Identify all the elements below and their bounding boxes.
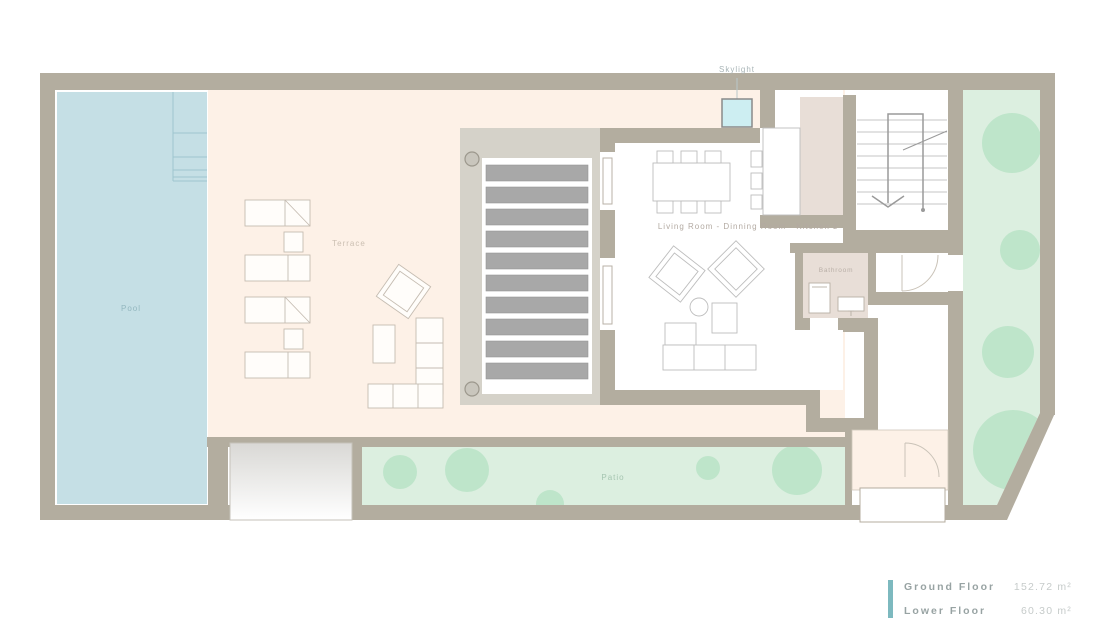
floor-plan-drawing: Skylight Terrace Pool Living Room - Dinn… [0, 0, 1110, 623]
wall-step-a [843, 318, 878, 332]
round-side-table [690, 298, 708, 316]
pergola-deck [460, 128, 605, 405]
glass-door-leaf-lower [603, 266, 612, 324]
wall-top [40, 73, 1055, 90]
wall-below-stairs [843, 230, 963, 243]
wall-right [1040, 73, 1055, 415]
outdoor-sofa-horizontal [368, 384, 443, 408]
wall-step-b [864, 332, 878, 432]
dining-chair [681, 201, 697, 213]
entry-vestibule-floor [876, 253, 948, 292]
wall-bathroom-top [790, 243, 963, 253]
wall-vestibule-bottom [868, 292, 963, 305]
bathroom-door-opening [810, 318, 838, 330]
bar-stool [751, 195, 762, 209]
patio-label: Patio [601, 473, 624, 482]
wall-skylight-side [760, 88, 775, 128]
driveway-ramp [230, 443, 352, 520]
legend-row-lower-floor: Lower Floor 60.30 m² [904, 605, 1072, 617]
side-table [284, 329, 303, 349]
legend-label: Ground Floor [904, 581, 995, 593]
wall-patio-entry-divider [845, 430, 852, 505]
dining-chair [657, 201, 673, 213]
shower [809, 283, 830, 313]
coffee-table [712, 303, 737, 333]
skylight-label: Skylight [719, 65, 755, 74]
toilet [838, 297, 864, 311]
wall-pool-ramp-divider [208, 443, 228, 520]
sun-lounger [245, 200, 310, 226]
bar-stool [751, 173, 762, 189]
entry-door-opening [948, 255, 963, 291]
pergola-column [465, 382, 479, 396]
side-table [284, 232, 303, 252]
dining-chair [681, 151, 697, 163]
wall-ramp-right [352, 443, 362, 505]
pool-area [57, 92, 207, 504]
wall-bathroom-left [795, 243, 803, 330]
terrace-label: Terrace [332, 239, 366, 248]
outdoor-coffee-table [373, 325, 395, 363]
legend-value: 152.72 m² [1014, 581, 1072, 593]
area-legend: Ground Floor 152.72 m² Lower Floor 60.30… [888, 580, 1072, 618]
bar-stool [751, 151, 762, 167]
outdoor-sofa-vertical [416, 318, 443, 394]
sofa [663, 345, 756, 370]
legend-rows: Ground Floor 152.72 m² Lower Floor 60.30… [904, 580, 1072, 618]
skylight-window [722, 99, 752, 127]
sun-lounger [245, 352, 310, 378]
pergola-column [465, 152, 479, 166]
dining-table [653, 163, 730, 201]
staircase-floor [856, 97, 948, 230]
ottoman [665, 323, 696, 345]
sun-lounger [245, 255, 310, 281]
side-court-floor [878, 305, 948, 418]
wall-living-bottom [600, 390, 820, 405]
entry-gate [860, 488, 945, 522]
legend-accent-bar [888, 580, 893, 618]
living-room-label: Living Room - Dinning Room - Kitchen z [658, 222, 838, 231]
legend-value: 60.30 m² [1021, 605, 1072, 617]
pool-label: Pool [121, 304, 141, 313]
wall-stairs-divider [843, 95, 856, 243]
floor-plan-canvas: Skylight Terrace Pool Living Room - Dinn… [0, 0, 1110, 623]
dining-chair [705, 151, 721, 163]
kitchen-counter [763, 128, 800, 215]
sun-lounger [245, 297, 310, 323]
dining-chair [657, 151, 673, 163]
entry-courtyard [852, 430, 948, 490]
legend-label: Lower Floor [904, 605, 986, 617]
wall-living-top [600, 128, 760, 143]
stair-start-dot [921, 208, 925, 212]
glass-door-leaf-upper [603, 158, 612, 204]
kitchen-wall-band [800, 97, 843, 215]
legend-row-ground-floor: Ground Floor 152.72 m² [904, 581, 1072, 593]
dining-chair [705, 201, 721, 213]
wall-left [40, 73, 55, 520]
bathroom-label: Bathroom [819, 267, 854, 274]
